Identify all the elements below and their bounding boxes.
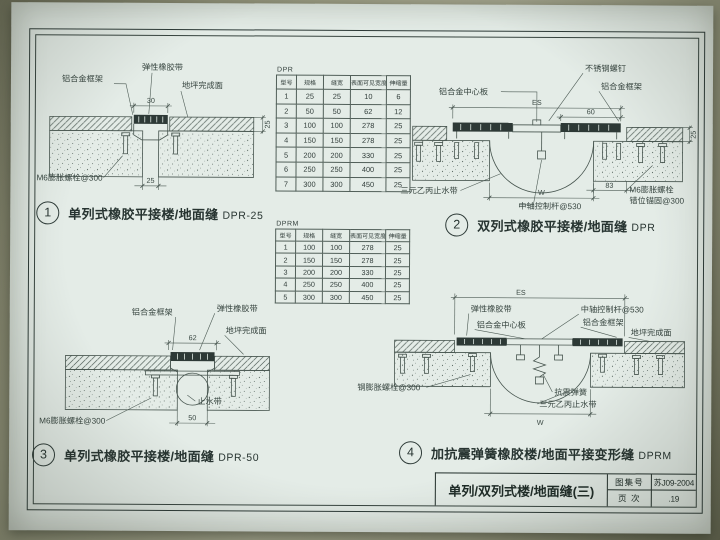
cell: 25 bbox=[323, 89, 350, 104]
dim-83: 83 bbox=[605, 181, 613, 190]
label-floor-finish: 地坪完成面 bbox=[226, 325, 267, 335]
caption-text: 单列式橡胶平接楼/地面缝 bbox=[64, 445, 214, 465]
cell: 7 bbox=[276, 177, 296, 192]
cell: 150 bbox=[296, 133, 323, 148]
cell: 330 bbox=[350, 148, 386, 163]
cell: 250 bbox=[323, 162, 350, 177]
column-header: 缝宽 bbox=[323, 75, 350, 89]
label-waterstop: 止水带 bbox=[197, 396, 222, 406]
table-row: 310010027825 bbox=[276, 118, 410, 133]
label-stainless-screw: 不锈钢螺钉 bbox=[585, 63, 626, 73]
caption-text: 加抗震弹簧橡胶楼/地面平接变形缝 bbox=[431, 443, 635, 463]
cell: 6 bbox=[386, 90, 410, 105]
cell: 25 bbox=[386, 133, 410, 148]
cell: 25 bbox=[385, 291, 409, 304]
column-header: 表面可见宽度 bbox=[350, 75, 386, 89]
label-alu-frame: 铝合金框架 bbox=[62, 73, 103, 83]
cell: 400 bbox=[350, 162, 386, 177]
cell: 12 bbox=[386, 104, 410, 119]
column-header: 伸缩量 bbox=[386, 230, 410, 242]
dpr-table-block: DPR 型号 规格 缝宽 表面可见宽度 伸缩量 12525106 2505062… bbox=[275, 67, 411, 193]
cell: 1 bbox=[276, 89, 296, 104]
cell: 25 bbox=[385, 266, 409, 279]
caption-code: DPR bbox=[631, 221, 655, 233]
label-center-plate: 铝合金中心板 bbox=[477, 320, 526, 330]
caption-text: 单列式橡胶平接楼/地面缝 bbox=[68, 203, 218, 223]
cell: 100 bbox=[323, 241, 350, 254]
cell: 100 bbox=[296, 118, 323, 133]
label-expansion-bolt: M6膨胀螺栓@300 bbox=[39, 415, 106, 425]
cell: 5 bbox=[275, 291, 295, 303]
dpr-table: 型号 规格 缝宽 表面可见宽度 伸缩量 12525106 250506212 3… bbox=[275, 75, 411, 193]
column-header: 规格 bbox=[296, 229, 323, 241]
cell: 6 bbox=[276, 162, 296, 177]
cell: 5 bbox=[276, 147, 296, 162]
label-alu-frame: 铝合金框架 bbox=[601, 81, 642, 91]
cell: 50 bbox=[323, 104, 350, 119]
detail-3-drawing: 铝合金框架 弹性橡胶带 地坪完成面 62 bbox=[37, 293, 283, 444]
label-alu-frame: 铝合金框架 bbox=[583, 317, 624, 327]
column-header: 伸缩量 bbox=[386, 76, 410, 90]
dprm-table: 型号 规格 缝宽 表面可见宽度 伸缩量 110010027825 2150150… bbox=[275, 229, 410, 305]
dim-top: 62 bbox=[189, 333, 197, 342]
detail-caption-3: 3 单列式橡胶平接楼/地面缝 DPR-50 bbox=[32, 443, 259, 467]
cell: 250 bbox=[296, 162, 323, 177]
page-number-value: .19 bbox=[652, 491, 696, 507]
label-rubber-strip: 弹性橡胶带 bbox=[217, 303, 258, 313]
cell: 10 bbox=[350, 89, 386, 104]
title-block: 单列/双列式楼/地面缝(三) 图集号 苏J09-2004 页 次 .19 bbox=[435, 472, 696, 506]
table-row: 625025040025 bbox=[276, 162, 410, 177]
dim-w: W bbox=[537, 418, 544, 427]
label-steel-expansion-bolt: 钢膨胀螺栓@300 bbox=[357, 382, 420, 392]
cell: 3 bbox=[276, 118, 296, 133]
cell: 2 bbox=[276, 104, 296, 119]
cell: 150 bbox=[323, 254, 350, 267]
detail-number-3: 3 bbox=[32, 443, 55, 466]
cell: 100 bbox=[323, 118, 350, 133]
cell: 25 bbox=[386, 177, 410, 192]
label-seismic-spring: 抗震弹簧 bbox=[554, 387, 587, 397]
detail-caption-4: 4 加抗震弹簧橡胶楼/地面平接变形缝 DPRM bbox=[399, 441, 672, 465]
table-row: 520020033025 bbox=[276, 147, 410, 162]
cell: 1 bbox=[276, 241, 296, 253]
cell: 3 bbox=[275, 266, 295, 278]
label-floor-finish: 地坪完成面 bbox=[182, 80, 223, 90]
dim-es: ES bbox=[516, 288, 526, 297]
dim-es: ES bbox=[532, 98, 542, 107]
cell: 50 bbox=[296, 104, 323, 119]
cell: 300 bbox=[322, 291, 349, 304]
dim-top: 30 bbox=[147, 96, 155, 105]
detail-4-drawing: ES 弹性橡胶带 铝合金中心板 中轴控制杆@530 铝合金框架 地坪完成面 bbox=[340, 282, 696, 439]
caption-code: DPR-25 bbox=[222, 209, 263, 221]
label-axis-control-rod: 中轴控制杆@530 bbox=[581, 304, 644, 314]
cell: 450 bbox=[350, 177, 386, 192]
dprm-table-block: DPRM 型号 规格 缝宽 表面可见宽度 伸缩量 110010027825 21… bbox=[275, 221, 410, 305]
label-rubber-strip: 弹性橡胶带 bbox=[142, 62, 183, 72]
cell: 278 bbox=[350, 241, 386, 254]
detail-number-1: 1 bbox=[36, 201, 59, 224]
dim-right: 25 bbox=[689, 131, 697, 139]
cell: 25 bbox=[385, 279, 409, 292]
label-center-plate: 铝合金中心板 bbox=[439, 86, 488, 96]
caption-text: 双列式橡胶平接楼/地面缝 bbox=[477, 216, 627, 236]
cell: 250 bbox=[322, 278, 349, 291]
cell: 400 bbox=[349, 279, 385, 292]
photo-of-drawing-sheet: 30 25 25 弹性橡胶带 铝合金框架 地坪完成面 M6膨胀螺栓@300 铝合… bbox=[0, 0, 720, 540]
table-header-row: 型号 规格 缝宽 表面可见宽度 伸缩量 bbox=[276, 229, 410, 242]
atlas-number-label: 图集号 bbox=[608, 474, 652, 490]
table-row: 415015027825 bbox=[276, 133, 410, 148]
atlas-number-value: 苏J09-2004 bbox=[652, 475, 696, 491]
cell: 330 bbox=[349, 266, 385, 279]
cell: 300 bbox=[296, 177, 323, 192]
cell: 2 bbox=[276, 253, 296, 265]
dim-60: 60 bbox=[587, 107, 595, 116]
column-header: 型号 bbox=[276, 229, 296, 241]
column-header: 表面可见宽度 bbox=[350, 229, 386, 241]
caption-code: DPR-50 bbox=[218, 451, 259, 463]
detail-2-drawing: 铝合金中心板 不锈钢螺钉 铝合金框架 ES 60 bbox=[400, 58, 697, 215]
cell: 25 bbox=[296, 89, 323, 104]
detail-1-drawing: 30 25 25 弹性橡胶带 铝合金框架 地坪完成面 M6膨胀螺栓@300 bbox=[35, 56, 271, 207]
table-row: 110010027825 bbox=[276, 241, 410, 254]
cell: 150 bbox=[296, 254, 323, 267]
cell: 150 bbox=[323, 133, 350, 148]
table-row: 730030045025 bbox=[276, 177, 410, 192]
dim-bottom: 25 bbox=[146, 176, 154, 185]
label-expansion-bolt: M6膨胀螺栓@300 bbox=[36, 172, 103, 182]
caption-code: DPRM bbox=[638, 449, 671, 461]
cell: 278 bbox=[350, 119, 386, 134]
detail-number-2: 2 bbox=[445, 213, 468, 236]
label-alu-frame: 铝合金框架 bbox=[132, 307, 173, 317]
label-expansion-bolt-line2: 错位锚固@300 bbox=[629, 195, 684, 205]
cell: 200 bbox=[323, 148, 350, 163]
table-row: 425025040025 bbox=[275, 278, 409, 291]
dpr-table-title: DPR bbox=[277, 67, 411, 75]
cell: 25 bbox=[386, 163, 410, 178]
page-number-label: 页 次 bbox=[608, 490, 652, 506]
detail-caption-2: 2 双列式橡胶平接楼/地面缝 DPR bbox=[445, 213, 655, 237]
drawing-paper: 30 25 25 弹性橡胶带 铝合金框架 地坪完成面 M6膨胀螺栓@300 铝合… bbox=[9, 2, 714, 534]
cell: 200 bbox=[296, 148, 323, 163]
label-expansion-bolt-line1: M6膨胀螺栓 bbox=[629, 184, 673, 194]
cell: 200 bbox=[322, 266, 349, 279]
dprm-table-title: DPRM bbox=[276, 221, 410, 229]
table-row: 215015027825 bbox=[276, 253, 410, 266]
cell: 4 bbox=[276, 133, 296, 148]
cell: 25 bbox=[386, 119, 410, 134]
cell: 300 bbox=[295, 291, 322, 304]
detail-number-4: 4 bbox=[399, 441, 422, 464]
table-row: 320020033025 bbox=[275, 266, 409, 279]
sheet-title: 单列/双列式楼/地面缝(三) bbox=[436, 473, 608, 506]
cell: 25 bbox=[386, 148, 410, 163]
dim-right: 25 bbox=[263, 120, 271, 128]
label-epdm-waterstop: 三元乙丙止水带 bbox=[539, 399, 596, 409]
detail-caption-1: 1 单列式橡胶平接楼/地面缝 DPR-25 bbox=[36, 201, 263, 225]
cell: 100 bbox=[296, 241, 323, 254]
column-header: 缝宽 bbox=[323, 229, 350, 241]
table-row: 530030045025 bbox=[275, 291, 409, 304]
table-row: 12525106 bbox=[276, 89, 410, 104]
cell: 25 bbox=[386, 254, 410, 267]
cell: 300 bbox=[323, 177, 350, 192]
table-header-row: 型号 规格 缝宽 表面可见宽度 伸缩量 bbox=[276, 75, 410, 90]
column-header: 型号 bbox=[276, 75, 296, 89]
dim-w: W bbox=[538, 188, 545, 197]
cell: 4 bbox=[275, 278, 295, 290]
cell: 278 bbox=[350, 133, 386, 148]
cell: 278 bbox=[350, 254, 386, 267]
dim-bottom: 50 bbox=[188, 413, 196, 422]
cell: 450 bbox=[349, 291, 385, 304]
label-floor-finish: 地坪完成面 bbox=[631, 327, 672, 337]
cell: 25 bbox=[386, 242, 410, 255]
label-axis-control-rod: 中轴控制杆@530 bbox=[518, 201, 581, 211]
cell: 200 bbox=[295, 266, 322, 279]
cell: 250 bbox=[295, 278, 322, 291]
label-rubber-strip: 弹性橡胶带 bbox=[471, 304, 512, 314]
table-row: 250506212 bbox=[276, 104, 410, 119]
column-header: 规格 bbox=[296, 75, 323, 89]
cell: 62 bbox=[350, 104, 386, 119]
